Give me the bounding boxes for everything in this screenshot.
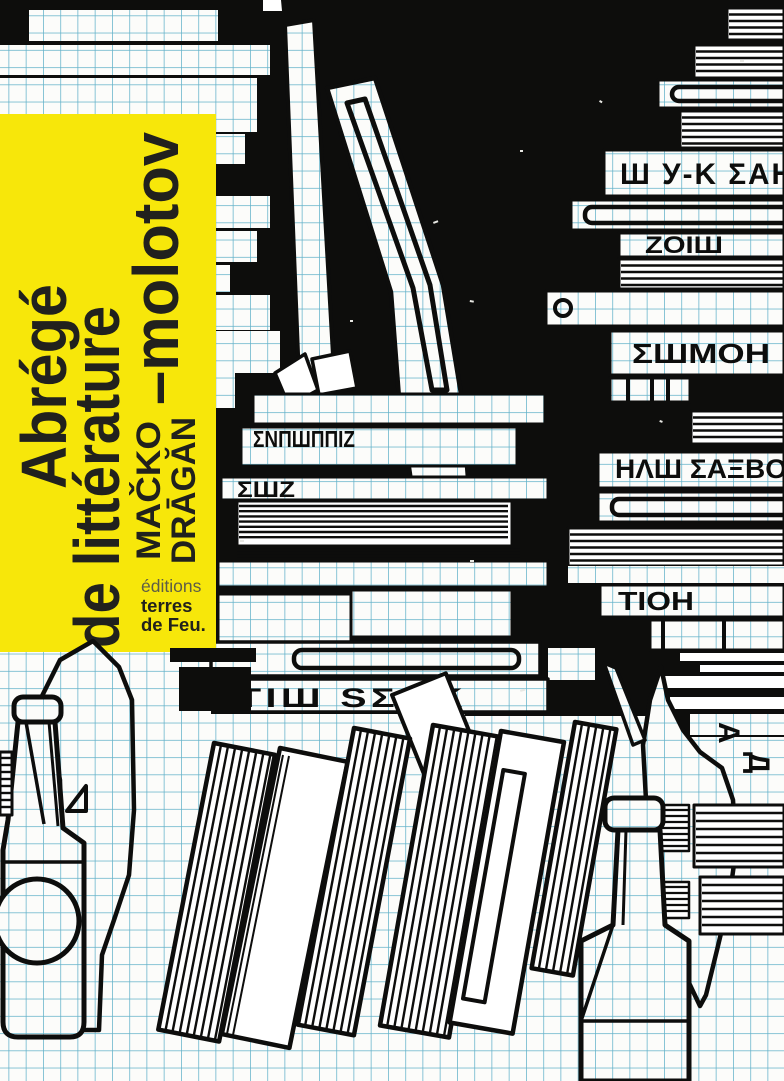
svg-text:terres: terres [141,595,192,616]
svg-text:ΣΝΠШПΠΙΖ: ΣΝΠШПΠΙΖ [253,426,355,452]
svg-text:Ш У-Κ ΣΑΗ: Ш У-Κ ΣΑΗ [620,158,784,191]
svg-text:ΖΟΙШ: ΖΟΙШ [645,232,723,259]
svg-text:ΤΙΟΗ: ΤΙΟΗ [618,586,694,616]
svg-text:éditions: éditions [141,576,202,596]
svg-text:de Feu.: de Feu. [141,614,206,635]
svg-text:А: А [712,722,745,744]
svg-text:ΗΛШ ΣΑΞΒΟ: ΗΛШ ΣΑΞΒΟ [615,454,784,484]
svg-text:Д: Д [742,752,775,773]
svg-text:–molotov: –molotov [120,132,192,405]
svg-text:MAČKO: MAČKO [129,421,168,560]
svg-text:ΣШΖ: ΣШΖ [237,477,295,502]
svg-text:ΣШΜΟΗ: ΣШΜΟΗ [632,338,770,369]
svg-text:DRĀGĂN: DRĀGĂN [165,417,203,564]
